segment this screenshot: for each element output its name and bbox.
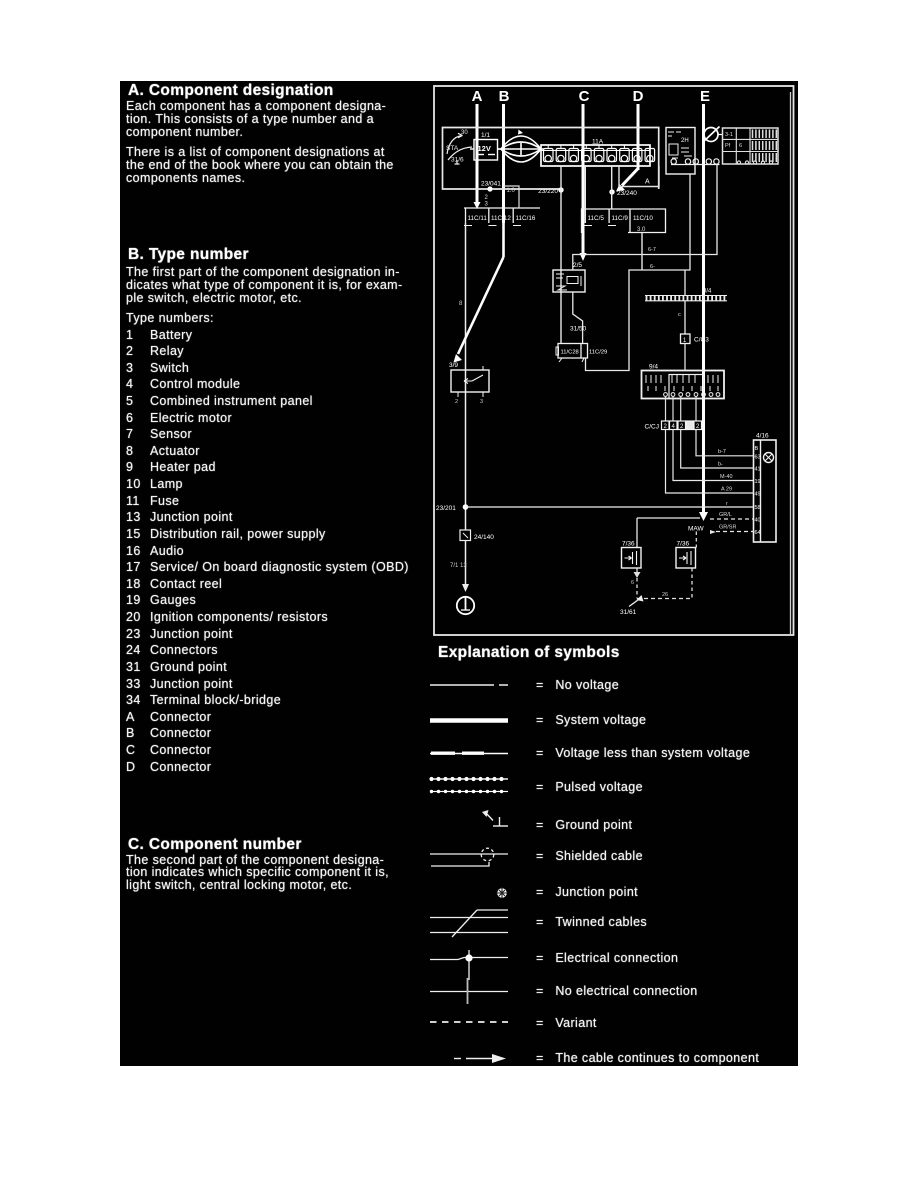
svg-text:19: 19 <box>755 479 761 485</box>
svg-text:B: B <box>755 446 759 452</box>
svg-text:64: 64 <box>755 530 761 536</box>
svg-text:6-: 6- <box>650 264 655 270</box>
svg-text:3: 3 <box>485 202 489 208</box>
svg-text:11C/12: 11C/12 <box>491 215 511 222</box>
svg-text:7/36: 7/36 <box>622 541 635 548</box>
svg-text:2H: 2H <box>681 138 689 144</box>
svg-text:49: 49 <box>755 492 761 498</box>
svg-text:1/1: 1/1 <box>481 132 490 139</box>
svg-text:58: 58 <box>755 505 761 511</box>
svg-text:c: c <box>678 312 681 318</box>
svg-text:31/6: 31/6 <box>451 157 464 164</box>
svg-text:23/240: 23/240 <box>617 190 637 197</box>
svg-text:b-7: b-7 <box>718 449 726 455</box>
svg-text:9/4: 9/4 <box>649 364 658 371</box>
svg-text:2/5: 2/5 <box>573 262 582 269</box>
svg-text:C/CJ: C/CJ <box>645 424 659 431</box>
svg-text:3: 3 <box>480 399 483 405</box>
svg-text:23/220: 23/220 <box>538 188 558 195</box>
svg-text:30: 30 <box>461 130 468 136</box>
svg-text:6: 6 <box>631 580 634 586</box>
svg-text:3/4: 3/4 <box>703 289 712 295</box>
svg-text:63: 63 <box>755 455 761 461</box>
svg-text:7/36: 7/36 <box>677 541 690 548</box>
svg-text:11/C28: 11/C28 <box>561 350 579 356</box>
svg-text:24/140: 24/140 <box>474 534 494 541</box>
svg-text:23/201: 23/201 <box>436 505 456 512</box>
svg-text:40: 40 <box>755 518 761 524</box>
svg-text:41: 41 <box>755 467 761 473</box>
svg-text:A: A <box>472 88 483 105</box>
svg-text:8: 8 <box>459 301 463 307</box>
svg-text:E: E <box>700 88 710 105</box>
svg-text:7/1 13: 7/1 13 <box>450 563 467 569</box>
svg-text:A: A <box>645 179 650 186</box>
svg-text:STA: STA <box>446 145 459 152</box>
svg-text:b-: b- <box>718 462 723 468</box>
svg-text:MAW: MAW <box>688 526 705 533</box>
svg-text:C: C <box>579 88 590 105</box>
svg-text:3.0: 3.0 <box>637 227 646 233</box>
svg-text:23/041: 23/041 <box>481 181 501 188</box>
svg-text:B: B <box>499 88 510 105</box>
svg-text:11C/29: 11C/29 <box>589 350 607 356</box>
svg-text:11C/16: 11C/16 <box>516 215 536 222</box>
svg-text:31/50: 31/50 <box>570 326 587 333</box>
svg-text:11C/11: 11C/11 <box>468 215 488 222</box>
svg-text:2: 2 <box>455 399 458 405</box>
svg-text:r: r <box>726 501 728 507</box>
svg-text:2: 2 <box>485 195 489 201</box>
svg-text:11C/9: 11C/9 <box>612 215 629 222</box>
svg-text:GR/L: GR/L <box>719 512 732 518</box>
svg-text:M-40: M-40 <box>720 474 733 480</box>
svg-text:31/61: 31/61 <box>620 609 637 616</box>
svg-text:GR/SR: GR/SR <box>719 525 736 531</box>
svg-text:3-1: 3-1 <box>725 132 733 138</box>
svg-text:11C/5: 11C/5 <box>588 215 605 222</box>
svg-text:26: 26 <box>662 592 668 598</box>
svg-text:11A: 11A <box>592 139 604 146</box>
svg-text:D: D <box>633 88 644 105</box>
svg-text:Pf: Pf <box>725 143 731 149</box>
svg-text:3/9: 3/9 <box>449 362 458 369</box>
svg-text:12V: 12V <box>478 144 491 153</box>
svg-text:4/16: 4/16 <box>756 433 769 440</box>
svg-text:11C/10: 11C/10 <box>633 215 653 222</box>
svg-text:C/C3: C/C3 <box>694 337 709 344</box>
svg-text:A 29: A 29 <box>721 487 732 493</box>
svg-text:1.0: 1.0 <box>507 188 516 194</box>
svg-text:6: 6 <box>739 143 742 149</box>
svg-text:6-7: 6-7 <box>648 247 656 253</box>
